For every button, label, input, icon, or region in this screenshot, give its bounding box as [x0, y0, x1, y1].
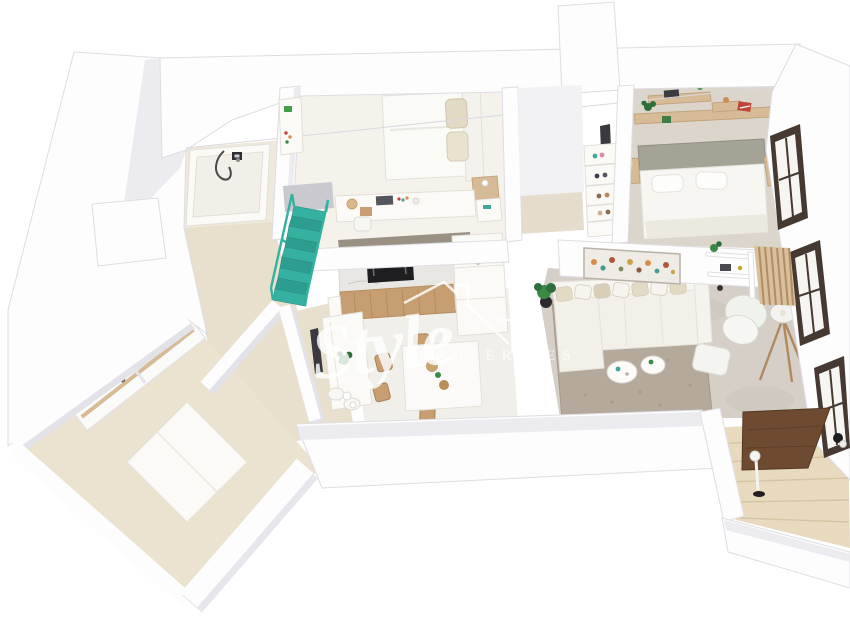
desk-cup [413, 198, 419, 204]
table-decor-green [649, 360, 654, 365]
mixer-screen [235, 155, 240, 158]
watermark-brand: Style [306, 296, 458, 397]
hall-cabinet [279, 97, 303, 155]
bathroom [186, 144, 270, 226]
watermark-subtitle: PROPERTIES [420, 348, 577, 364]
decor-bowl2 [439, 380, 449, 390]
green-books [662, 116, 671, 123]
table-decor-grey [625, 372, 629, 376]
entry-vestibule [558, 2, 620, 94]
desk-chair [354, 217, 371, 231]
bedside-shelf [476, 198, 502, 222]
sofa-seat [596, 290, 700, 350]
floor-plan-render: Style PROPERTIES [0, 0, 850, 620]
vase [482, 180, 488, 186]
clay-pot [723, 97, 729, 103]
wall-art [584, 248, 680, 284]
table-decor-teal [616, 367, 621, 372]
teal-books [483, 205, 491, 209]
vase2 [350, 402, 356, 408]
cabinet-sign [284, 106, 292, 112]
closet-back [518, 85, 584, 196]
tub-drain [236, 158, 240, 162]
wood-slat-panel [754, 246, 796, 306]
floor-plan-canvas: Style PROPERTIES [0, 0, 850, 620]
utility-slab [92, 198, 166, 266]
desk-wood-box [360, 207, 372, 216]
vase [343, 392, 351, 400]
bathtub-basin [193, 152, 263, 217]
desk-basket [347, 199, 357, 209]
desk-books [376, 196, 393, 206]
